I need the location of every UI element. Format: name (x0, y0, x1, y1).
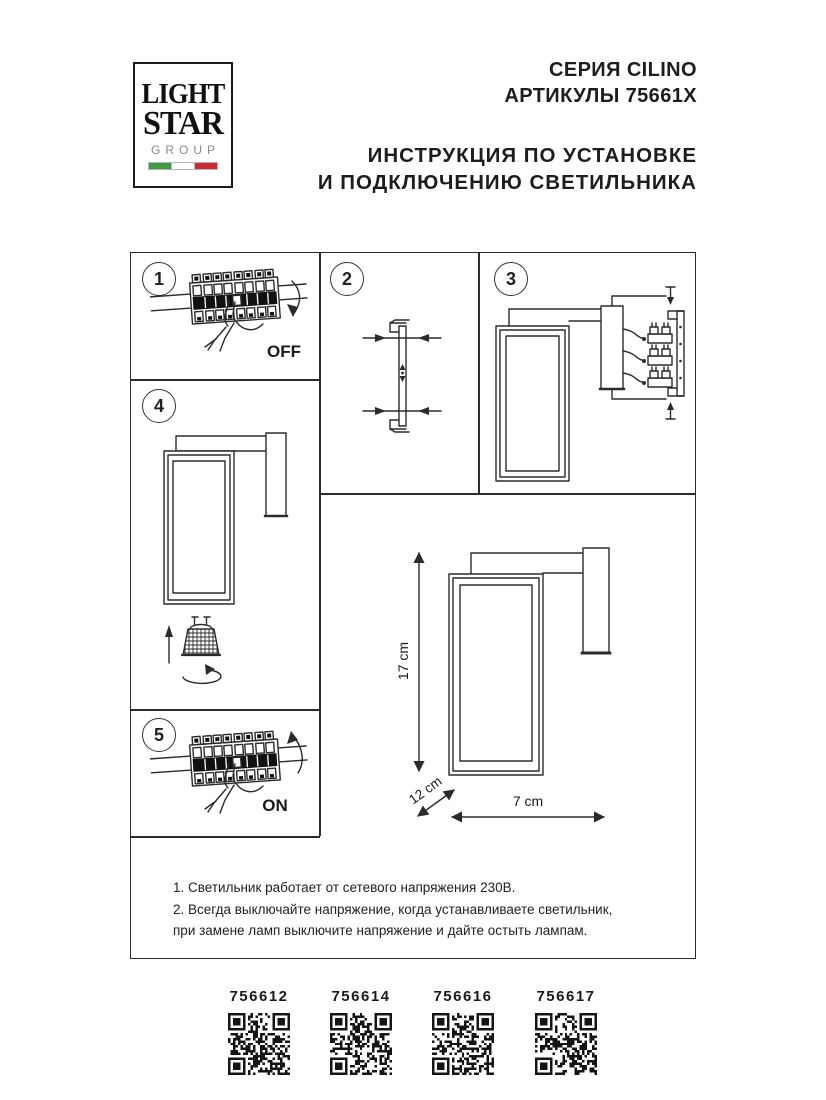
qr-code-image (330, 1013, 392, 1075)
top-screw-icon (666, 287, 675, 305)
qr-code-label: 756616 (415, 988, 511, 1005)
qr-code-image (228, 1013, 290, 1075)
lamp-install-illustration (131, 379, 319, 709)
canopy-cylinder (266, 433, 286, 516)
power-on-label: ON (262, 796, 288, 815)
breaker-off-illustration: OFF (131, 253, 319, 379)
flag-white-stripe (171, 163, 195, 169)
circuit-breaker-drawing (149, 729, 308, 789)
qr-code-label: 756614 (313, 988, 409, 1005)
canopy-cylinder (601, 306, 623, 389)
instruction-sheet: LIGHT STAR GROUP СЕРИЯ CILINO АРТИКУЛЫ 7… (0, 0, 826, 1100)
twist-arrow-icon (183, 664, 221, 683)
qr-item: 756616 (415, 988, 511, 1080)
safety-notes: 1. Светильник работает от сетевого напря… (173, 877, 653, 942)
qr-code-image (432, 1013, 494, 1075)
series-title: СЕРИЯ CILINO (318, 57, 697, 83)
mounting-bracket-illustration (319, 253, 478, 493)
depth-dimension-label: 12 cm (406, 773, 445, 807)
logo-group-text: GROUP (135, 143, 231, 157)
qr-item: 756617 (518, 988, 614, 1080)
flag-green-stripe (149, 163, 171, 169)
logo-light-text: LIGHT (139, 80, 227, 108)
terminal-block-icon (648, 367, 672, 387)
qr-code-image (535, 1013, 597, 1075)
note-line-2: 2. Всегда выключайте напряжение, когда у… (173, 899, 653, 921)
note-line-1: 1. Светильник работает от сетевого напря… (173, 877, 653, 899)
articles-subtitle: АРТИКУЛЫ 75661X (318, 83, 697, 109)
lamp-body-drawing (164, 451, 234, 604)
grid-divider (131, 836, 320, 838)
gu10-bulb-icon (182, 617, 220, 655)
italy-flag-icon (148, 162, 218, 170)
qr-item: 756614 (313, 988, 409, 1080)
power-off-label: OFF (267, 342, 301, 361)
qr-code-label: 756612 (211, 988, 307, 1005)
qr-code-label: 756617 (518, 988, 614, 1005)
instruction-title-line2: И ПОДКЛЮЧЕНИЮ СВЕТИЛЬНИКА (318, 169, 697, 196)
flag-red-stripe (195, 163, 217, 169)
rotate-up-arrow-icon (287, 731, 302, 773)
wiring-connection-illustration (478, 253, 695, 493)
lamp-body-drawing (449, 574, 543, 775)
height-dimension-label: 17 cm (395, 642, 411, 680)
note-line-3: при замене ламп выключите напряжение и д… (173, 920, 653, 942)
lightstar-logo: LIGHT STAR GROUP (133, 62, 233, 188)
header: СЕРИЯ CILINO АРТИКУЛЫ 75661X ИНСТРУКЦИЯ … (318, 57, 697, 196)
logo-star-text: STAR (137, 108, 228, 140)
insert-up-arrow-icon (165, 625, 173, 663)
canopy-cylinder (583, 548, 609, 653)
lamp-body-drawing (496, 326, 569, 481)
bottom-screw-icon (666, 402, 675, 419)
breaker-on-illustration: ON (131, 709, 319, 836)
instruction-grid: 1 2 3 4 5 (130, 252, 696, 959)
qr-item: 756612 (211, 988, 307, 1080)
circuit-breaker-drawing (149, 267, 308, 327)
instruction-title-line1: ИНСТРУКЦИЯ ПО УСТАНОВКЕ (318, 142, 697, 169)
terminal-block-icon (648, 323, 672, 343)
terminal-wires (623, 329, 646, 385)
width-dimension-label: 7 cm (513, 793, 543, 809)
terminal-block-icon (648, 345, 672, 365)
